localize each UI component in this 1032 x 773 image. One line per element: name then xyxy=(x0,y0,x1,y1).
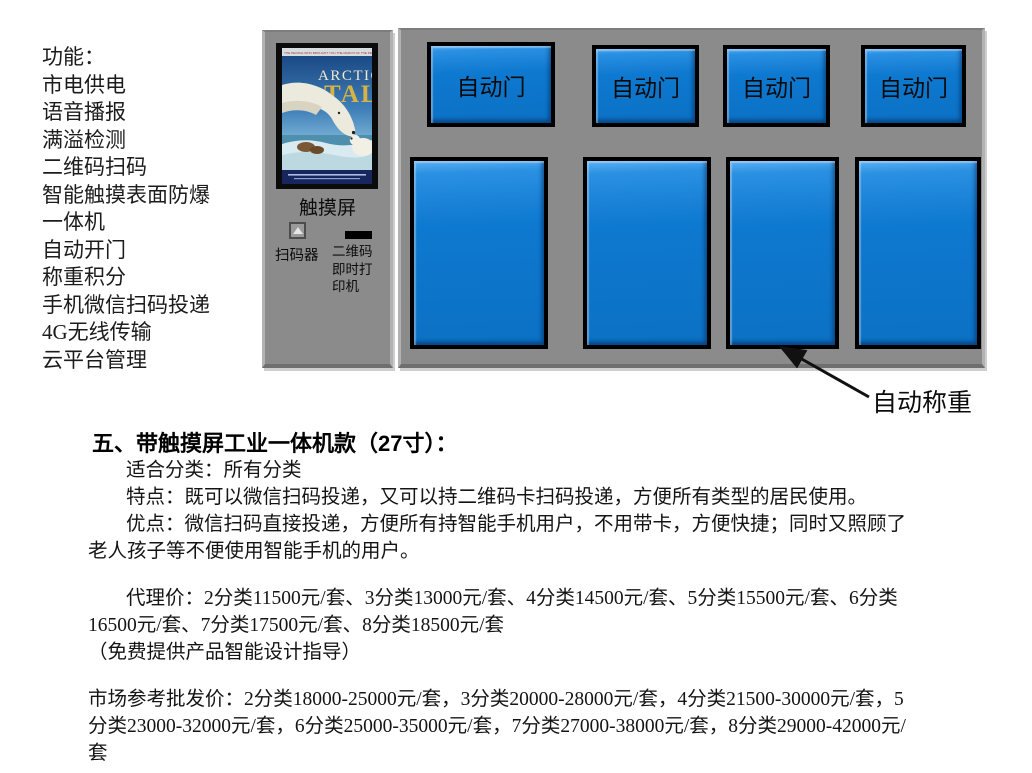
touchscreen-label: 触摸屏 xyxy=(265,193,390,220)
feature-item: 自动开门 xyxy=(42,237,210,265)
desc-line: 16500元/套、7分类17500元/套、8分类18500元/套 xyxy=(88,612,1008,639)
feature-item: 智能触摸表面防爆 xyxy=(42,182,210,210)
auto-door-button-3[interactable]: 自动门 xyxy=(723,45,830,127)
feature-item: 称重积分 xyxy=(42,264,210,292)
scanner-label: 扫码器 xyxy=(275,244,319,265)
section-heading: 五、带触摸屏工业一体机款（27寸）： xyxy=(92,426,457,458)
desc-line: 代理价：2分类11500元/套、3分类13000元/套、4分类14500元/套、… xyxy=(88,585,1008,612)
feature-item: 市电供电 xyxy=(42,72,210,100)
poster-tagline: THE PEOPLE WHO BROUGHT YOU THE MARCH OF … xyxy=(284,51,378,55)
auto-door-label: 自动门 xyxy=(611,69,680,103)
auto-door-label: 自动门 xyxy=(879,69,948,103)
desc-line: 市场参考批发价：2分类18000-25000元/套，3分类20000-28000… xyxy=(88,686,1008,713)
auto-door-label: 自动门 xyxy=(457,68,526,102)
auto-door-label: 自动门 xyxy=(742,69,811,103)
deposit-bin-4[interactable] xyxy=(855,157,981,349)
feature-item: 二维码扫码 xyxy=(42,154,210,182)
desc-line: 老人孩子等不便使用智能手机的用户。 xyxy=(88,538,1008,565)
desc-line: 特点：既可以微信扫码投递，又可以持二维码卡扫码投递，方便所有类型的居民使用。 xyxy=(88,484,1008,511)
auto-door-button-2[interactable]: 自动门 xyxy=(592,45,699,127)
auto-door-button-1[interactable]: 自动门 xyxy=(427,42,555,127)
feature-item: 一体机 xyxy=(42,209,210,237)
auto-door-button-4[interactable]: 自动门 xyxy=(861,45,966,127)
desc-line: 套 xyxy=(88,740,1008,767)
deposit-bin-2[interactable] xyxy=(583,157,711,349)
description-text: 适合分类：所有分类 特点：既可以微信扫码投递，又可以持二维码卡扫码投递，方便所有… xyxy=(88,457,1008,767)
feature-list: 功能： 市电供电 语音播报 满溢检测 二维码扫码 智能触摸表面防爆 一体机 自动… xyxy=(42,44,210,374)
desc-line: 适合分类：所有分类 xyxy=(88,457,1008,484)
scanner-icon[interactable] xyxy=(289,222,306,239)
machine-right-panel: 自动门 自动门 自动门 自动门 xyxy=(398,28,985,368)
desc-line: （免费提供产品智能设计指导） xyxy=(88,639,1008,666)
desc-line xyxy=(88,666,1008,686)
feature-item: 4G无线传输 xyxy=(42,319,210,347)
qr-printer-label: 二维码 即时打 印机 xyxy=(332,243,373,296)
deposit-bin-1[interactable] xyxy=(410,157,548,349)
scanner-triangle-glyph xyxy=(293,227,303,234)
feature-list-title: 功能： xyxy=(42,44,210,72)
deposit-bin-3[interactable] xyxy=(726,157,839,349)
touchscreen-poster-image: THE PEOPLE WHO BROUGHT YOU THE MARCH OF … xyxy=(276,43,378,189)
qr-printer-slot xyxy=(345,231,372,239)
desc-line: 分类23000-32000元/套，6分类25000-35000元/套，7分类27… xyxy=(88,713,1008,740)
desc-line: 优点：微信扫码直接投递，方便所有持智能手机用户，不用带卡，方便快捷；同时又照顾了 xyxy=(88,511,1008,538)
slide: 功能： 市电供电 语音播报 满溢检测 二维码扫码 智能触摸表面防爆 一体机 自动… xyxy=(0,0,1032,773)
weighing-label: 自动称重 xyxy=(872,383,972,419)
feature-item: 云平台管理 xyxy=(42,347,210,375)
machine-left-panel: THE PEOPLE WHO BROUGHT YOU THE MARCH OF … xyxy=(262,30,393,368)
feature-item: 手机微信扫码投递 xyxy=(42,292,210,320)
feature-item: 语音播报 xyxy=(42,99,210,127)
desc-line xyxy=(88,565,1008,585)
feature-item: 满溢检测 xyxy=(42,127,210,155)
